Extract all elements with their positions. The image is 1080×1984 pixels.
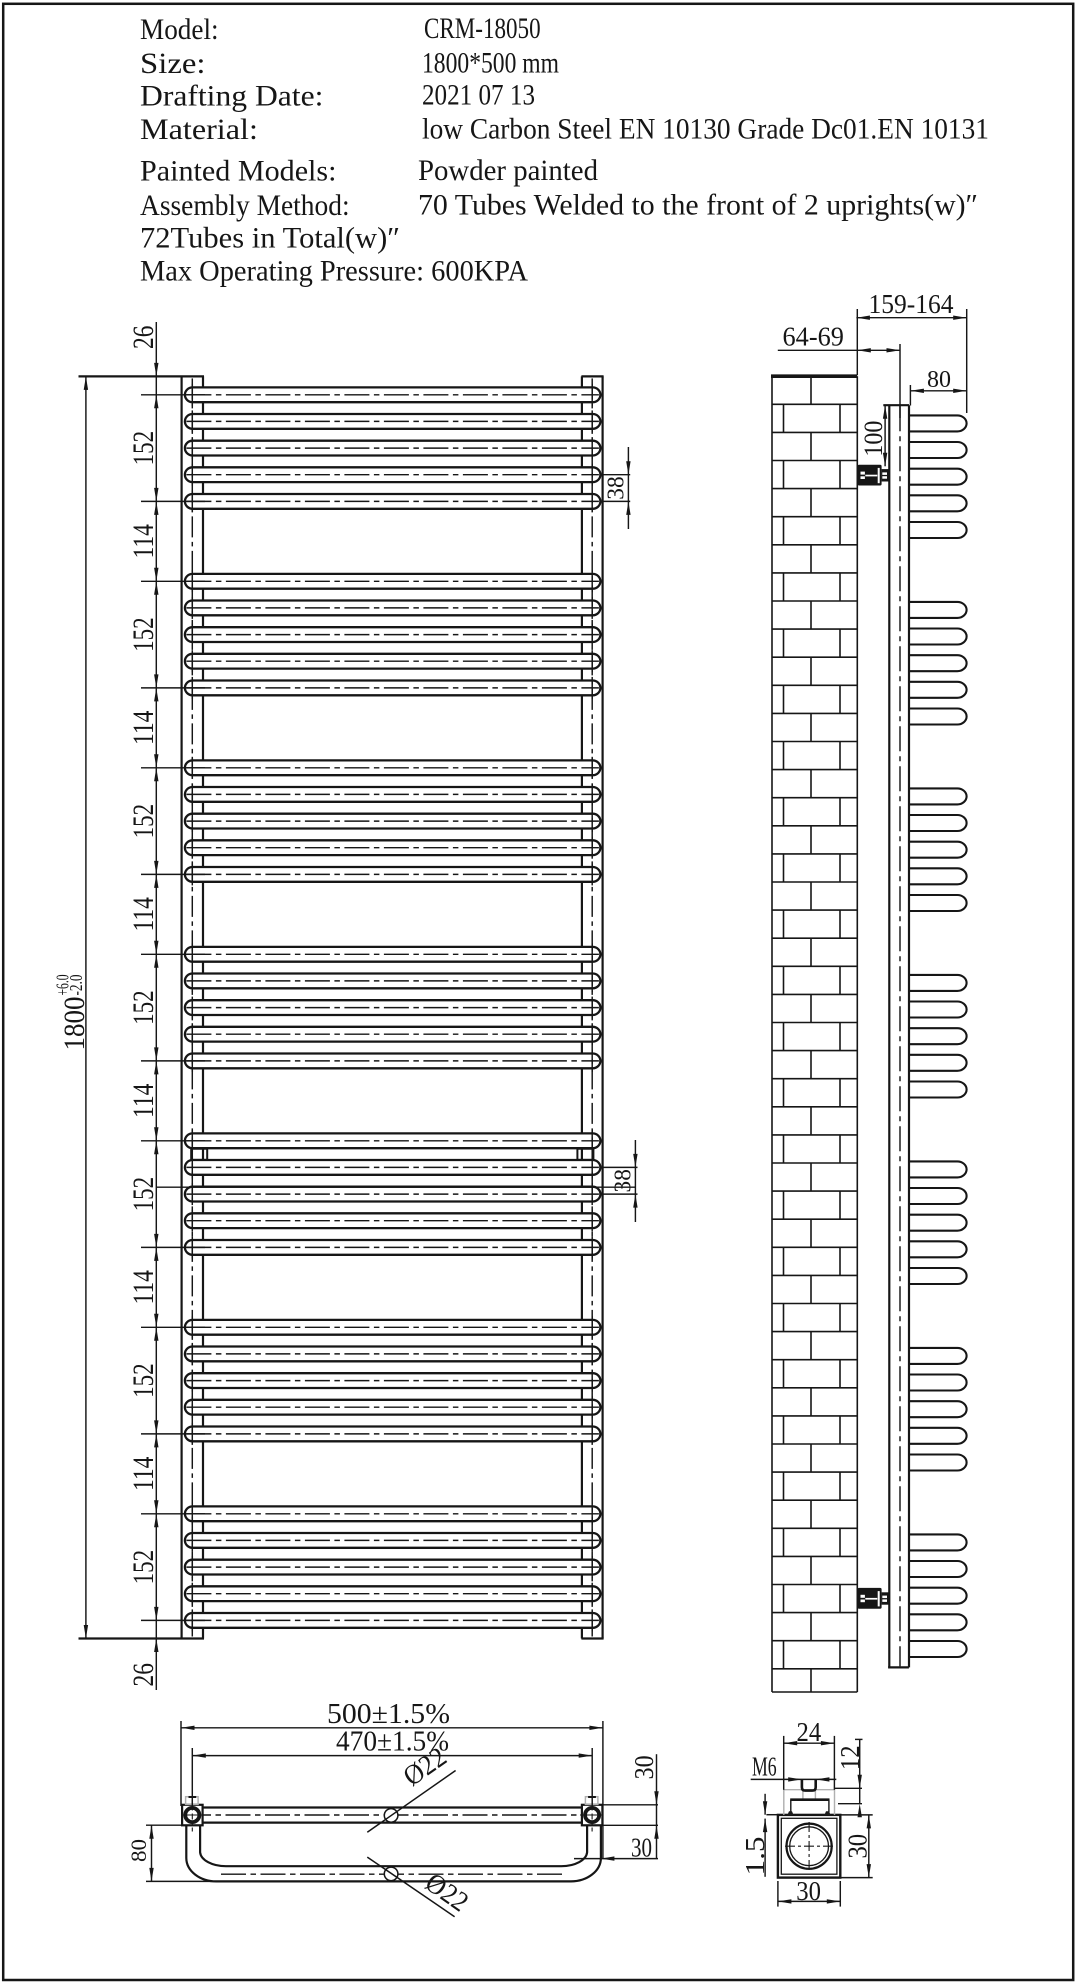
svg-text:70 Tubes Welded to the front o: 70 Tubes Welded to the front of 2 uprigh… <box>418 189 978 222</box>
svg-text:152: 152 <box>127 990 160 1025</box>
svg-text:152: 152 <box>127 1177 160 1212</box>
svg-text:Material:: Material: <box>140 113 258 146</box>
svg-text:38: 38 <box>610 1169 636 1192</box>
svg-text:30: 30 <box>796 1876 821 1906</box>
svg-text:38: 38 <box>603 476 629 499</box>
svg-text:100: 100 <box>859 421 888 457</box>
svg-text:24: 24 <box>797 1717 822 1747</box>
svg-text:Model:: Model: <box>140 13 219 46</box>
svg-text:152: 152 <box>127 617 160 652</box>
svg-text:114: 114 <box>127 711 160 746</box>
svg-text:114: 114 <box>127 1270 160 1305</box>
svg-text:-2.0: -2.0 <box>66 974 86 995</box>
svg-text:Size:: Size: <box>140 47 206 80</box>
svg-text:152: 152 <box>127 804 160 839</box>
svg-text:26: 26 <box>127 326 160 349</box>
svg-text:152: 152 <box>127 431 160 466</box>
svg-text:80: 80 <box>927 367 951 393</box>
svg-text:Drafting Date:: Drafting Date: <box>140 80 323 113</box>
svg-text:152: 152 <box>127 1550 160 1585</box>
svg-text:Powder painted: Powder painted <box>418 154 598 187</box>
svg-text:114: 114 <box>127 524 160 559</box>
svg-text:1.5: 1.5 <box>740 1837 770 1876</box>
svg-text:Max Operating Pressure: 600KPA: Max Operating Pressure: 600KPA <box>140 255 528 288</box>
svg-text:30: 30 <box>843 1834 873 1859</box>
svg-text:12: 12 <box>835 1745 865 1770</box>
svg-text:114: 114 <box>127 1084 160 1119</box>
svg-text:30: 30 <box>631 1833 652 1863</box>
svg-text:114: 114 <box>127 897 160 932</box>
svg-text:M6: M6 <box>752 1752 777 1782</box>
svg-text:114: 114 <box>127 1457 160 1492</box>
svg-text:152: 152 <box>127 1363 160 1398</box>
svg-text:500±1.5%: 500±1.5% <box>327 1699 450 1730</box>
svg-text:1800*500 mm: 1800*500 mm <box>422 47 559 80</box>
svg-text:low Carbon Steel EN 10130 Gra: low Carbon Steel EN 10130 Grade Dc01.EN … <box>422 113 989 146</box>
svg-text:72Tubes in Total(w)″: 72Tubes in Total(w)″ <box>140 222 400 255</box>
svg-text:1800: 1800 <box>58 997 91 1051</box>
svg-text:64-69: 64-69 <box>783 321 844 351</box>
svg-text:30: 30 <box>629 1755 659 1779</box>
svg-text:80: 80 <box>126 1839 151 1862</box>
svg-text:Painted Models:: Painted Models: <box>140 155 337 188</box>
svg-text:26: 26 <box>127 1663 160 1686</box>
svg-text:Assembly Method:: Assembly Method: <box>140 189 350 222</box>
svg-text:159-164: 159-164 <box>869 289 954 319</box>
svg-text:2021 07 13: 2021 07 13 <box>422 79 535 112</box>
svg-text:CRM-18050: CRM-18050 <box>424 12 541 45</box>
